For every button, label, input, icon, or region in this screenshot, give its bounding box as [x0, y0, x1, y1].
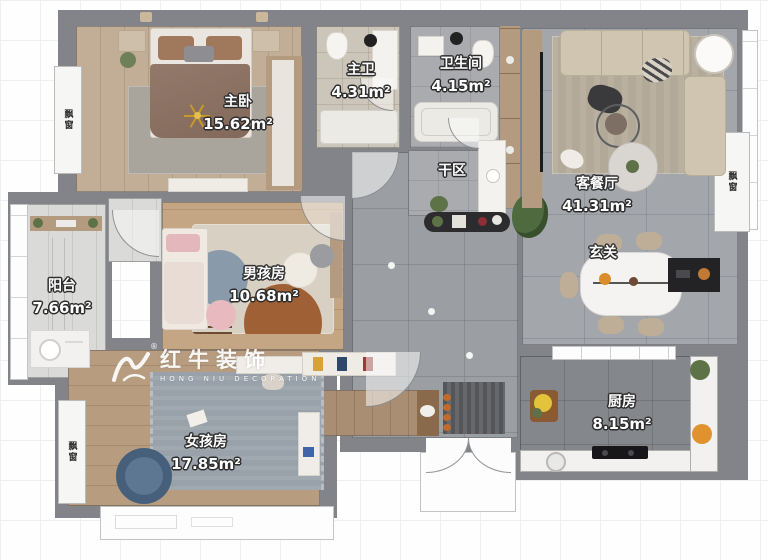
washer-door [39, 339, 61, 361]
sink-basin [486, 169, 500, 183]
book [337, 357, 347, 371]
console-bench [424, 212, 510, 232]
flower-orange [692, 424, 712, 444]
window-kitchen-partition [552, 346, 676, 360]
washer-panel [65, 341, 83, 343]
wardrobe-door [272, 60, 294, 186]
deco-orange [599, 273, 611, 285]
shoes [443, 394, 451, 401]
flower-red [478, 217, 487, 226]
bay-window-left-top: 飘窗 [54, 66, 82, 174]
dining-chair [560, 272, 578, 298]
shelf-item [56, 220, 76, 227]
rug-circle-brown [244, 284, 322, 334]
bottom-ledge [100, 506, 334, 540]
plant-small [432, 216, 443, 227]
ceiling-fan [450, 32, 463, 45]
plant-small [430, 196, 448, 212]
girl-desk-chair [262, 374, 284, 390]
bedroom-bench [168, 178, 248, 192]
sofa-chaise [684, 76, 726, 176]
sink-bathroom [418, 36, 444, 56]
downlight [388, 262, 395, 269]
bay-window-label: 飘窗 [62, 109, 75, 131]
plant-small [88, 218, 98, 228]
chandelier-center [194, 112, 201, 119]
dining-chair [598, 316, 624, 334]
deco-brown [629, 277, 638, 286]
cabinet-deco [506, 56, 514, 64]
ledge-sketch [115, 515, 177, 529]
wall-light [140, 12, 152, 22]
flower-basket [530, 390, 558, 422]
plant-small [690, 360, 710, 380]
shoes [443, 424, 451, 431]
shoes [443, 404, 451, 411]
coffee-table-inner [605, 113, 627, 135]
book [313, 357, 323, 371]
round-chair-blue [116, 448, 172, 504]
window-balcony-left [10, 204, 28, 380]
tv-console [522, 30, 542, 208]
balcony-shelf [30, 216, 102, 231]
plant-small [33, 218, 43, 228]
washing-machine [30, 330, 90, 368]
downlight [466, 352, 473, 359]
bay-window-left-bottom: 飘窗 [58, 400, 86, 504]
leaf [532, 408, 542, 418]
sideboard-dark [668, 258, 720, 292]
downlight [428, 308, 435, 315]
coffee-table-marble [608, 142, 658, 192]
mirror-oval [420, 405, 435, 417]
deco-item [676, 270, 690, 278]
floor-plan: 飘窗 飘窗 飘窗 [0, 0, 768, 560]
plant [120, 52, 136, 68]
dining-table [580, 252, 682, 316]
pouf-pink [206, 300, 236, 330]
dining-chair [638, 318, 664, 336]
chair-cushion [125, 457, 163, 495]
mudroom-rug [443, 382, 505, 434]
kitchen-sink [546, 452, 566, 472]
drying-rack-line [52, 238, 53, 330]
dining-chair [636, 232, 662, 250]
shoe-bench [417, 390, 439, 436]
boy-bed-blanket [164, 262, 204, 324]
side-table-round [694, 34, 734, 74]
deco-orange [698, 268, 710, 280]
master-bed-pillow [184, 46, 214, 62]
ledge-sketch [191, 517, 233, 527]
wall-light [256, 12, 268, 22]
shower-master-bath [320, 110, 398, 144]
deco-blue [303, 447, 314, 457]
wardrobe-master [266, 56, 302, 190]
chandelier [184, 104, 210, 128]
ceiling-fan [364, 34, 377, 47]
burner [602, 450, 608, 456]
burner [628, 450, 634, 456]
plant-small [626, 160, 639, 173]
flower-white [492, 215, 502, 225]
dining-chair [596, 234, 622, 252]
boy-bed-pillow [166, 234, 200, 252]
tv-screen [540, 52, 543, 172]
cabinet-deco [506, 146, 514, 154]
bay-window-label: 飘窗 [726, 171, 739, 193]
nightstand [252, 30, 280, 52]
deco-book [452, 215, 466, 228]
toilet-master-bath [326, 32, 348, 60]
stove [592, 446, 648, 459]
drying-rack-line [64, 238, 65, 330]
nightstand [118, 30, 146, 52]
toilet-bathroom [472, 40, 494, 68]
dry-area-vanity [478, 140, 506, 216]
desk-chair [310, 244, 334, 268]
girl-shelf [298, 412, 320, 476]
bay-window-label: 飘窗 [66, 441, 79, 463]
shoes [443, 414, 451, 421]
